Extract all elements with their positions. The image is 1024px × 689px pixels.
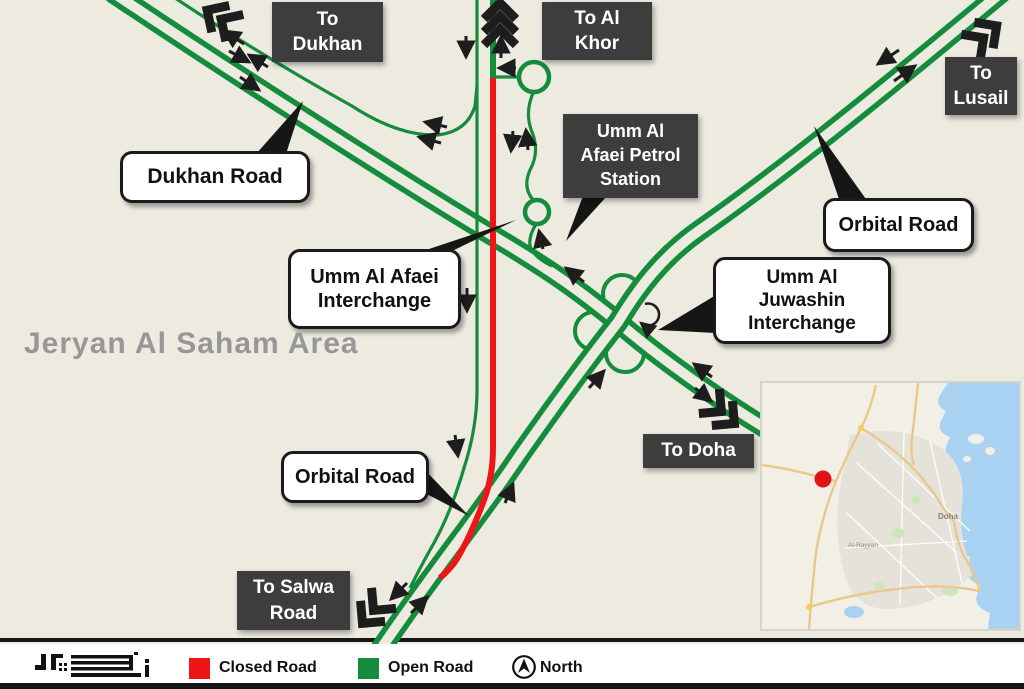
road-closure-map: To Dukhan To Al Khor To Lusail Umm Al Af…	[0, 0, 1024, 689]
label-dukhan-road: Dukhan Road	[120, 151, 310, 203]
road-junction-dot	[806, 604, 812, 610]
inset-city-doha: Doha	[938, 512, 959, 521]
north-label: North	[540, 657, 583, 678]
road-junction-dot	[858, 425, 864, 431]
ashghal-logo-icon	[33, 652, 158, 680]
open-road-label: Open Road	[388, 657, 473, 678]
inset-map: Doha Al-Rayyan	[760, 381, 1021, 631]
north-compass-icon	[511, 654, 537, 680]
inset-map-canvas: Doha Al-Rayyan	[762, 383, 1019, 629]
closed-road-swatch	[189, 658, 210, 679]
dest-to-lusail: To Lusail	[945, 57, 1017, 115]
label-orbital-road-ne: Orbital Road	[823, 198, 974, 252]
open-road-swatch	[358, 658, 379, 679]
petrol-station-label: Umm Al Afaei Petrol Station	[563, 114, 698, 198]
legend-top-border	[0, 638, 1024, 642]
legend-bar: Closed Road Open Road North	[0, 644, 1024, 689]
dest-to-al-khor: To Al Khor	[542, 2, 652, 60]
area-name-label: Jeryan Al Saham Area	[24, 327, 359, 361]
closed-road-label: Closed Road	[219, 657, 317, 678]
dest-to-doha: To Doha	[643, 434, 754, 468]
label-umm-al-afaei-interchange: Umm Al Afaei Interchange	[288, 249, 461, 329]
dest-to-dukhan: To Dukhan	[272, 2, 383, 62]
dest-to-salwa-road: To Salwa Road	[237, 571, 350, 630]
location-marker-dot	[815, 471, 832, 488]
label-orbital-road-sw: Orbital Road	[281, 451, 429, 503]
inset-city-alrayyan: Al-Rayyan	[848, 542, 878, 549]
label-umm-al-juwashin-interchange: Umm Al Juwashin Interchange	[713, 257, 891, 344]
